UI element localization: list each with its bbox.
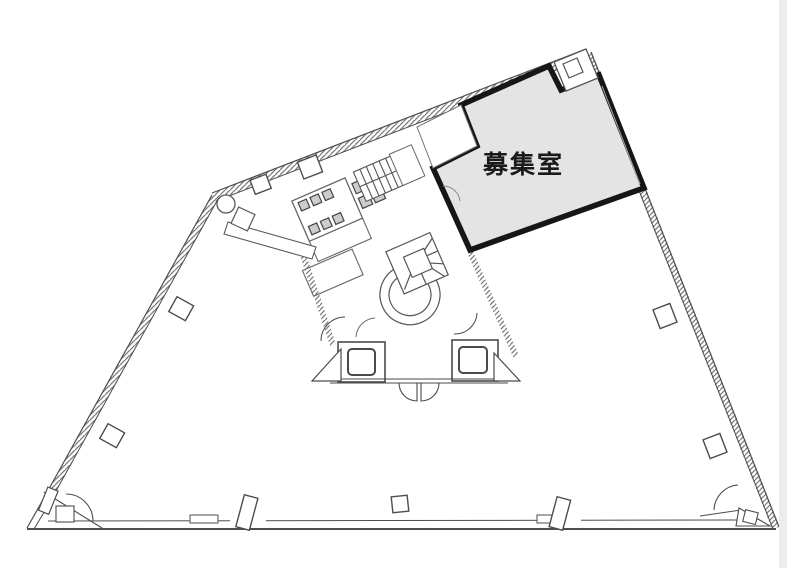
double-door-leaf bbox=[421, 383, 439, 401]
wall-edge-line bbox=[48, 520, 740, 521]
column bbox=[703, 433, 727, 458]
wall-openings bbox=[230, 517, 581, 527]
floor-plan-page: 募集室 bbox=[0, 0, 787, 568]
door-arc bbox=[356, 318, 375, 337]
wall-edge-line bbox=[27, 505, 40, 528]
column bbox=[653, 303, 677, 328]
wall-jog bbox=[190, 515, 218, 523]
wall-columns bbox=[100, 155, 727, 513]
column bbox=[100, 424, 125, 448]
elevator-block bbox=[312, 313, 520, 401]
scan-edge-strip bbox=[779, 0, 787, 568]
spiral-stair bbox=[363, 233, 461, 335]
door-arc bbox=[454, 313, 477, 334]
wall-edge-line bbox=[46, 199, 218, 509]
wall-segment bbox=[299, 243, 333, 345]
column bbox=[391, 495, 409, 513]
core-corner-triangle bbox=[494, 353, 520, 381]
core-corner-triangle bbox=[312, 349, 341, 381]
corridor-band bbox=[224, 222, 316, 259]
elevator-car bbox=[459, 347, 487, 373]
column bbox=[169, 297, 194, 321]
wall-edge-line bbox=[700, 510, 741, 516]
wall-segment bbox=[43, 197, 215, 507]
corner-column bbox=[743, 510, 759, 525]
elevator-car bbox=[348, 349, 375, 375]
door-slab bbox=[38, 487, 58, 514]
floor-plan-canvas bbox=[0, 0, 787, 568]
corner-column-round bbox=[217, 195, 235, 213]
wall-edge-line bbox=[40, 195, 212, 505]
double-door-leaf bbox=[399, 383, 417, 401]
room-label: 募集室 bbox=[483, 145, 579, 181]
corner-room bbox=[56, 506, 74, 522]
door-arc bbox=[714, 485, 738, 510]
